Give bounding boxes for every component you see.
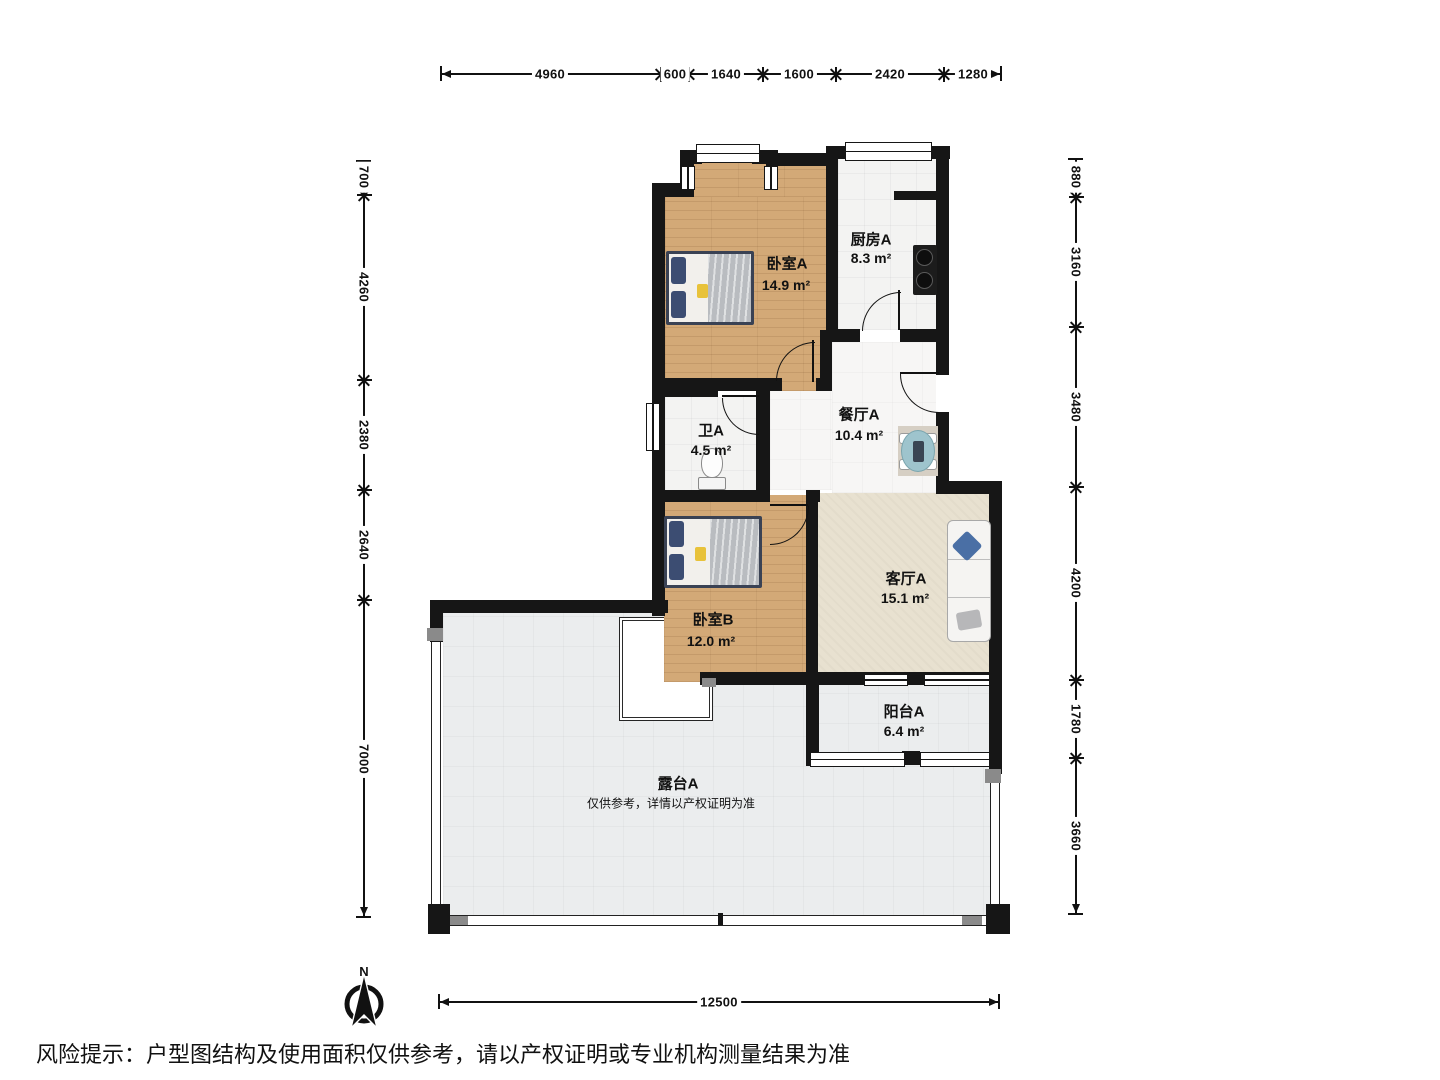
dimension-line-top: 4960 600 1640 1600 2420 1280 [440, 66, 1002, 82]
burner [916, 249, 933, 266]
bedroom-b-door-leaf [770, 504, 808, 506]
dim-right-4: 1780 [1069, 700, 1084, 738]
terrace-parapet-wall [430, 600, 668, 613]
terrace-corner-post [986, 904, 1010, 934]
bed-accent [697, 284, 708, 298]
wall [820, 330, 832, 391]
room-area-bath-a: 4.5 m² [691, 442, 731, 458]
dim-right-3: 4200 [1069, 564, 1084, 602]
dim-top-1: 600 [661, 67, 690, 82]
kitchen-counter-stub-wall [894, 191, 936, 200]
pillow [671, 257, 686, 284]
kitchen-window [845, 142, 932, 161]
burner [916, 272, 933, 289]
pillow [669, 521, 684, 547]
wall [806, 490, 820, 502]
blanket [708, 254, 751, 322]
dim-top-2: 1640 [708, 67, 744, 82]
dim-left-2: 2380 [357, 416, 372, 454]
entry-door-leaf [900, 372, 939, 374]
room-area-living-a: 15.1 m² [881, 590, 929, 606]
rail-connector [985, 769, 1001, 783]
sofa-pillow-blue [951, 530, 982, 561]
wall [989, 684, 1002, 774]
room-label-bedroom-b: 卧室B [693, 609, 734, 630]
blanket [710, 519, 759, 585]
room-label-kitchen-a: 厨房A [851, 229, 892, 250]
bay-side-window [764, 166, 778, 190]
living-window [924, 674, 990, 686]
bed-accent [695, 547, 706, 561]
room-area-balcony-a: 6.4 m² [884, 723, 924, 739]
dim-left-1: 4260 [357, 268, 372, 306]
balcony-window [920, 752, 990, 767]
terrace-rail-joint [718, 913, 723, 925]
wall [806, 502, 818, 686]
dimension-line-right: 880 3160 3480 4200 1780 3660 [1068, 158, 1084, 915]
wall [766, 153, 832, 166]
table-tray [913, 441, 924, 462]
dim-right-1: 3160 [1069, 243, 1084, 281]
dim-top-0: 4960 [532, 67, 568, 82]
compass: N [336, 962, 392, 1036]
rail-connector [427, 628, 443, 641]
room-area-dining-a: 10.4 m² [835, 427, 883, 443]
terrace-corner-post [428, 904, 450, 934]
room-label-bath-a: 卫A [698, 420, 724, 441]
rail-connector [702, 678, 716, 687]
room-label-terrace-a: 露台A [658, 773, 699, 794]
dim-bottom-0: 12500 [697, 995, 741, 1010]
floorplan-page: 卧室A 14.9 m² 厨房A 8.3 m² 卫A 4.5 m² 餐厅A 10.… [0, 0, 1440, 1080]
dining-table-set [898, 426, 938, 476]
bay-side-window [681, 166, 695, 190]
dim-left-4: 7000 [357, 740, 372, 778]
dimension-line-bottom: 12500 [438, 994, 1000, 1010]
wall [936, 342, 949, 375]
room-area-kitchen-a: 8.3 m² [851, 250, 891, 266]
room-label-living-a: 客厅A [886, 568, 927, 589]
bed-double [664, 516, 762, 588]
dim-left-3: 2640 [357, 526, 372, 564]
bedroom-a-door-leaf [812, 340, 814, 382]
room-area-bedroom-b: 12.0 m² [687, 633, 735, 649]
sofa [947, 520, 991, 642]
terrace-rail-right [990, 782, 1000, 914]
wall [936, 146, 949, 343]
terrace-rail-left [431, 640, 441, 910]
wall [652, 183, 665, 397]
wall [826, 146, 838, 342]
dim-top-5: 1280 [955, 67, 991, 82]
dim-top-3: 1600 [781, 67, 817, 82]
dim-right-2: 3480 [1069, 388, 1084, 426]
bed-double [666, 251, 754, 325]
dim-right-5: 3660 [1069, 817, 1084, 855]
sofa-pillow-gray [956, 609, 983, 631]
bath-window [646, 403, 660, 451]
stove-cooktop [913, 245, 937, 295]
pillow [669, 554, 684, 580]
room-label-balcony-a: 阳台A [884, 701, 925, 722]
wall [900, 329, 949, 342]
wall [700, 672, 818, 685]
pillow [671, 291, 686, 318]
dimension-line-left: 700 4260 2380 2640 7000 [356, 160, 372, 918]
living-window [864, 674, 908, 686]
room-area-bedroom-a: 14.9 m² [762, 277, 810, 293]
rail-connector [450, 916, 468, 925]
room-note-terrace-a: 仅供参考，详情以产权证明为准 [587, 795, 755, 812]
dining-floor-west [770, 391, 832, 490]
room-label-bedroom-a: 卧室A [767, 253, 808, 274]
kitchen-door-leaf [898, 290, 900, 330]
dim-left-0: 700 [357, 162, 372, 193]
room-label-dining-a: 餐厅A [839, 404, 880, 425]
bath-door-leaf [722, 395, 759, 397]
risk-disclaimer-text: 风险提示：户型图结构及使用面积仅供参考，请以产权证明或专业机构测量结果为准 [36, 1037, 850, 1069]
bay-window [696, 144, 760, 163]
dim-right-0: 880 [1069, 162, 1084, 193]
dim-top-4: 2420 [872, 67, 908, 82]
balcony-window [810, 752, 905, 767]
rail-connector [962, 916, 982, 925]
